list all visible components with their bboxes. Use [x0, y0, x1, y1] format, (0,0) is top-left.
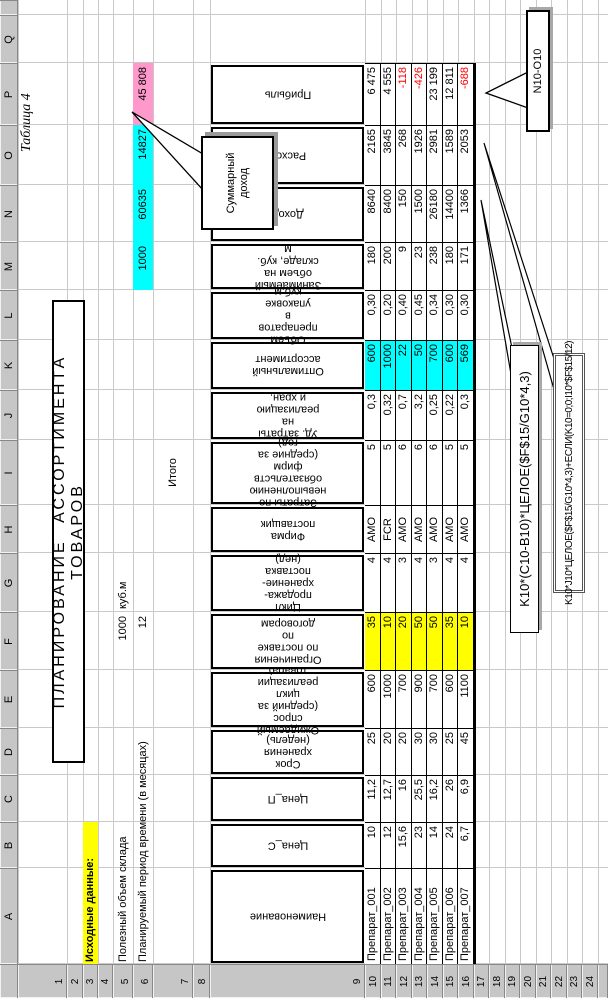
cell-H16[interactable]: АМО: [458, 505, 474, 553]
column-header-I[interactable]: I: [0, 440, 18, 505]
header-cell-A9[interactable]: Наименование: [211, 870, 364, 963]
cell-K13[interactable]: 50: [412, 340, 428, 390]
cell-J15[interactable]: 0,22: [443, 390, 459, 440]
useful-volume-label[interactable]: Полезный объем склада: [113, 837, 133, 962]
period-value[interactable]: 12: [133, 616, 153, 670]
cell-A13[interactable]: Препарат_004: [412, 868, 428, 964]
column-header-H[interactable]: H: [0, 505, 18, 553]
worksheet-rotated: ABCDEFGHIJKLMNOPQ12345678910111213141516…: [0, 0, 608, 998]
header-text-K: Оптимальный ассортимент: [252, 354, 324, 378]
total-cell-N6[interactable]: 60635: [133, 189, 153, 242]
cell-I14[interactable]: 6: [427, 440, 443, 505]
header-text-H: Фирма поставщик: [260, 517, 314, 541]
cell-B16[interactable]: 6,7: [458, 822, 474, 868]
cell-N13[interactable]: 1500: [412, 185, 428, 242]
cell-E13[interactable]: 900: [412, 670, 428, 728]
row-header-7[interactable]: 7: [153, 964, 193, 998]
cell-G14[interactable]: 3: [427, 553, 443, 612]
header-cell-P9[interactable]: Прибыль: [211, 65, 364, 124]
cell-M16[interactable]: 171: [458, 242, 474, 290]
column-header-F[interactable]: F: [0, 612, 18, 670]
cell-A10[interactable]: Препарат_001: [365, 868, 381, 964]
row-header-13[interactable]: 13: [412, 964, 428, 998]
cell-M13[interactable]: 23: [412, 242, 428, 290]
row-header-3[interactable]: 3: [83, 964, 98, 998]
cell-M15[interactable]: 180: [443, 242, 459, 290]
period-label[interactable]: Планируемый период времени (в месяцах): [133, 741, 153, 962]
sum-income-callout[interactable]: Суммарный доход: [201, 136, 274, 230]
cell-J13[interactable]: 3,2: [412, 390, 428, 440]
column-header-M[interactable]: M: [0, 242, 18, 290]
row-header-20[interactable]: 20: [520, 964, 536, 998]
cell-L10[interactable]: 0,30: [365, 290, 381, 340]
cell-H14[interactable]: АМО: [427, 505, 443, 553]
gridline-row: [598, 0, 599, 964]
total-cell-P6[interactable]: 45 808: [133, 67, 153, 125]
cell-H15[interactable]: АМО: [443, 505, 459, 553]
gridline-row: [193, 0, 194, 964]
header-text-C: Цена_П: [267, 793, 307, 805]
column-header-L[interactable]: L: [0, 290, 18, 340]
cell-A11[interactable]: Препарат_002: [381, 868, 397, 964]
gridline-col: [18, 62, 608, 63]
cell-C14[interactable]: 16,2: [427, 775, 443, 822]
cell-L16[interactable]: 0,30: [458, 290, 474, 340]
cell-P15[interactable]: 12 811: [443, 63, 459, 125]
cell-K12[interactable]: 22: [396, 340, 412, 390]
header-text-J: Уд. затраты на реализацию и хран.: [256, 392, 319, 440]
header-cell-L9[interactable]: Объем препаратов в упаковке куб.м: [211, 292, 364, 339]
gridline-row: [551, 0, 552, 964]
row-header-1[interactable]: 1: [18, 964, 67, 998]
column-header-P[interactable]: P: [0, 63, 18, 125]
cell-D12[interactable]: 20: [396, 728, 412, 775]
column-header-G[interactable]: G: [0, 553, 18, 612]
gridline-col: [18, 867, 608, 868]
cell-N10[interactable]: 8640: [365, 185, 381, 242]
cell-E15[interactable]: 600: [443, 670, 459, 728]
cell-M10[interactable]: 180: [365, 242, 381, 290]
cell-G12[interactable]: 3: [396, 553, 412, 612]
row-header-8[interactable]: 8: [193, 964, 210, 998]
cell-F11[interactable]: 10: [381, 612, 397, 670]
header-cell-I9[interactable]: Затраты по невыполнению обязательств фир…: [211, 442, 364, 504]
cell-I11[interactable]: 5: [381, 440, 397, 505]
cell-A16[interactable]: Препарат_007: [458, 868, 474, 964]
cell-I13[interactable]: 6: [412, 440, 428, 505]
row-header-24[interactable]: 24: [582, 964, 598, 998]
n10o10-callout-pointer: [486, 72, 528, 108]
cell-M14[interactable]: 238: [427, 242, 443, 290]
cell-H11[interactable]: FCR: [381, 505, 397, 553]
header-text-E: Ожидаемый спрос (средний за цикл реализа…: [256, 663, 318, 735]
cell-L12[interactable]: 0,40: [396, 290, 412, 340]
gridline-row: [98, 0, 99, 964]
header-text-B: Цена_С: [267, 839, 308, 851]
gridline-col: [18, 774, 608, 775]
header-cell-M9[interactable]: Занимаемый объем на складе, куб. м: [211, 244, 364, 289]
cell-P13[interactable]: -426: [412, 63, 428, 125]
row-header-4[interactable]: 4: [98, 964, 113, 998]
itogo-label[interactable]: Итого: [153, 440, 193, 505]
cell-A12[interactable]: Препарат_003: [396, 868, 412, 964]
cell-D15[interactable]: 25: [443, 728, 459, 775]
cell-D13[interactable]: 30: [412, 728, 428, 775]
cell-H13[interactable]: АМО: [412, 505, 428, 553]
cell-L14[interactable]: 0,34: [427, 290, 443, 340]
cell-O12[interactable]: 268: [396, 125, 412, 185]
cell-K14[interactable]: 700: [427, 340, 443, 390]
cell-K16[interactable]: 569: [458, 340, 474, 390]
sum-income-callout-text: Суммарный доход: [225, 153, 251, 214]
cell-C10[interactable]: 11,2: [365, 775, 381, 822]
row-header-23[interactable]: 23: [567, 964, 583, 998]
cell-K11[interactable]: 1000: [381, 340, 397, 390]
cell-O16[interactable]: 2053: [458, 125, 474, 185]
cell-F13[interactable]: 50: [412, 612, 428, 670]
cell-P12[interactable]: -118: [396, 63, 412, 125]
row-header-16[interactable]: 16: [458, 964, 474, 998]
cell-C16[interactable]: 6,9: [458, 775, 474, 822]
row-header-9[interactable]: 9: [210, 964, 365, 998]
cell-O13[interactable]: 1926: [412, 125, 428, 185]
cell-C15[interactable]: 26: [443, 775, 459, 822]
cell-G15[interactable]: 4: [443, 553, 459, 612]
cell-I12[interactable]: 6: [396, 440, 412, 505]
cell-K10[interactable]: 600: [365, 340, 381, 390]
cell-L13[interactable]: 0,45: [412, 290, 428, 340]
cell-C12[interactable]: 16: [396, 775, 412, 822]
column-header-Q[interactable]: Q: [0, 15, 18, 63]
cell-N12[interactable]: 150: [396, 185, 412, 242]
cell-E14[interactable]: 700: [427, 670, 443, 728]
column-header-N[interactable]: N: [0, 185, 18, 242]
cell-O11[interactable]: 3845: [381, 125, 397, 185]
row-header-19[interactable]: 19: [505, 964, 521, 998]
header-cell-H9[interactable]: Фирма поставщик: [211, 507, 364, 552]
column-header-O[interactable]: O: [0, 125, 18, 185]
header-cell-B9[interactable]: Цена_С: [211, 824, 364, 867]
sheet-title: ПЛАНИРОВАНИЕ АССОРТИМЕНТА ТОВАРОВ: [51, 302, 87, 761]
row-header-18[interactable]: 18: [489, 964, 505, 998]
gridline-col: [18, 821, 608, 822]
cell-E16[interactable]: 1100: [458, 670, 474, 728]
gridline-row: [113, 0, 114, 964]
row-header-6[interactable]: 6: [133, 964, 153, 998]
cell-D10[interactable]: 25: [365, 728, 381, 775]
column-header-A[interactable]: A: [0, 868, 18, 964]
cell-K15[interactable]: 600: [443, 340, 459, 390]
header-cell-C9[interactable]: Цена_П: [211, 777, 364, 821]
row-header-17[interactable]: 17: [474, 964, 490, 998]
cell-C13[interactable]: 25,5: [412, 775, 428, 822]
useful-volume-value[interactable]: 1000: [113, 616, 133, 670]
gridline-row: [505, 0, 506, 964]
cell-M11[interactable]: 200: [381, 242, 397, 290]
header-text-P: Прибыль: [260, 89, 315, 101]
row-header-10[interactable]: 10: [365, 964, 381, 998]
gridline-row: [489, 0, 490, 964]
gridline-col: [18, 184, 608, 185]
header-text-M: Занимаемый объем на складе, куб. м: [254, 243, 320, 291]
profit-formula-callout[interactable]: N10-O10: [526, 10, 550, 132]
cell-N15[interactable]: 14400: [443, 185, 459, 242]
cell-F12[interactable]: 20: [396, 612, 412, 670]
total-cell-O6[interactable]: 14827: [133, 129, 153, 185]
row-header-11[interactable]: 11: [381, 964, 397, 998]
cell-P10[interactable]: 6 475: [365, 63, 381, 125]
header-text-L: Объем препаратов в упаковке куб.м: [258, 285, 317, 345]
header-cell-D9[interactable]: Срок хранения (недель): [211, 730, 364, 774]
column-header-J[interactable]: J: [0, 390, 18, 440]
income-formula-pointer: [481, 200, 512, 380]
column-header-K[interactable]: K: [0, 340, 18, 390]
cell-J16[interactable]: 0,3: [458, 390, 474, 440]
column-header-partial[interactable]: [0, 0, 18, 15]
cell-L15[interactable]: 0,30: [443, 290, 459, 340]
cell-D11[interactable]: 20: [381, 728, 397, 775]
cell-E11[interactable]: 1000: [381, 670, 397, 728]
gridline-col: [18, 124, 608, 125]
cell-J14[interactable]: 0,25: [427, 390, 443, 440]
cell-D16[interactable]: 45: [458, 728, 474, 775]
cell-B14[interactable]: 14: [427, 822, 443, 868]
header-text-D: Срок хранения (недель): [263, 734, 311, 770]
column-header-B[interactable]: B: [0, 822, 18, 868]
select-all-corner[interactable]: [0, 964, 18, 998]
row-header-15[interactable]: 15: [443, 964, 459, 998]
expense-formula-text: K10*J10*ЦЕЛОЕ($F$15/G10*4,3)+ЕСЛИ(K10=0;…: [564, 341, 575, 605]
cell-L11[interactable]: 0,20: [381, 290, 397, 340]
header-cell-E9[interactable]: Ожидаемый спрос (средний за цикл реализа…: [211, 672, 364, 727]
cell-F10[interactable]: 35: [365, 612, 381, 670]
header-text-G: Цикл продажа-хранение- поставка (нед): [262, 553, 314, 613]
cell-I10[interactable]: 5: [365, 440, 381, 505]
row-header-partial[interactable]: [598, 964, 608, 998]
column-header-D[interactable]: D: [0, 728, 18, 775]
profit-formula-text: N10-O10: [532, 49, 544, 94]
cell-F15[interactable]: 35: [443, 612, 459, 670]
cell-F16[interactable]: 10: [458, 612, 474, 670]
cell-I15[interactable]: 5: [443, 440, 459, 505]
useful-volume-units[interactable]: куб.м: [113, 582, 133, 609]
column-header-C[interactable]: C: [0, 775, 18, 822]
cell-G10[interactable]: 4: [365, 553, 381, 612]
cell-P14[interactable]: 23 199: [427, 63, 443, 125]
row-header-2[interactable]: 2: [67, 964, 83, 998]
cell-C11[interactable]: 12,7: [381, 775, 397, 822]
header-text-I: Затраты по невыполнению обязательств фир…: [249, 437, 326, 509]
header-cell-G9[interactable]: Цикл продажа-хранение- поставка (нед): [211, 555, 364, 611]
source-data-label[interactable]: Исходные данные:: [83, 858, 98, 962]
cell-G11[interactable]: 4: [381, 553, 397, 612]
cell-B11[interactable]: 12: [381, 822, 397, 868]
header-cell-J9[interactable]: Уд. затраты на реализацию и хран.: [211, 392, 364, 439]
cell-D14[interactable]: 30: [427, 728, 443, 775]
column-header-E[interactable]: E: [0, 670, 18, 728]
cell-B10[interactable]: 10: [365, 822, 381, 868]
row-header-21[interactable]: 21: [536, 964, 552, 998]
cell-J11[interactable]: 0,32: [381, 390, 397, 440]
cell-B12[interactable]: 15,6: [396, 822, 412, 868]
row-header-14[interactable]: 14: [427, 964, 443, 998]
table-number-caption: Таблица 4: [19, 93, 35, 152]
gridline-col: [18, 14, 608, 15]
cell-I16[interactable]: 5: [458, 440, 474, 505]
cell-F14[interactable]: 50: [427, 612, 443, 670]
cell-G16[interactable]: 4: [458, 553, 474, 612]
cell-N11[interactable]: 8400: [381, 185, 397, 242]
cell-O15[interactable]: 1589: [443, 125, 459, 185]
header-text-A: Наименование: [243, 911, 332, 923]
header-cell-F9[interactable]: Ограничения по поставке по договорам: [211, 614, 364, 669]
cell-O10[interactable]: 2165: [365, 125, 381, 185]
cell-A14[interactable]: Препарат_005: [427, 868, 443, 964]
expense-formula-callout[interactable]: K10*J10*ЦЕЛОЕ($F$15/G10*4,3)+ЕСЛИ(K10=0;…: [553, 353, 585, 593]
cell-N14[interactable]: 26180: [427, 185, 443, 242]
cell-B13[interactable]: 23: [412, 822, 428, 868]
cell-B15[interactable]: 24: [443, 822, 459, 868]
cell-H12[interactable]: АМО: [396, 505, 412, 553]
total-cell-M6[interactable]: 1000: [133, 246, 153, 290]
row-header-12[interactable]: 12: [396, 964, 412, 998]
cell-E12[interactable]: 700: [396, 670, 412, 728]
cell-G13[interactable]: 4: [412, 553, 428, 612]
cell-H10[interactable]: АМО: [365, 505, 381, 553]
header-text-F: Ограничения по поставке по договорам: [254, 618, 321, 666]
cell-E10[interactable]: 600: [365, 670, 381, 728]
cell-A15[interactable]: Препарат_006: [443, 868, 459, 964]
cell-P16[interactable]: -688: [458, 63, 474, 125]
cell-N16[interactable]: 1366: [458, 185, 474, 242]
cell-O14[interactable]: 2981: [427, 125, 443, 185]
row-header-5[interactable]: 5: [113, 964, 133, 998]
income-formula-text: K10*(C10-B10)*ЦЕЛОЕ($F$15/G10*4,3): [517, 371, 532, 607]
header-cell-K9[interactable]: Оптимальный ассортимент: [211, 342, 364, 389]
row-header-22[interactable]: 22: [551, 964, 567, 998]
income-formula-callout[interactable]: K10*(C10-B10)*ЦЕЛОЕ($F$15/G10*4,3): [510, 345, 539, 633]
cell-P11[interactable]: 4 555: [381, 63, 397, 125]
sheet-title-box[interactable]: ПЛАНИРОВАНИЕ АССОРТИМЕНТА ТОВАРОВ: [52, 300, 85, 763]
cell-J10[interactable]: 0,3: [365, 390, 381, 440]
cell-J12[interactable]: 0,7: [396, 390, 412, 440]
cell-M12[interactable]: 9: [396, 242, 412, 290]
spreadsheet-screenshot: ABCDEFGHIJKLMNOPQ12345678910111213141516…: [0, 0, 608, 998]
